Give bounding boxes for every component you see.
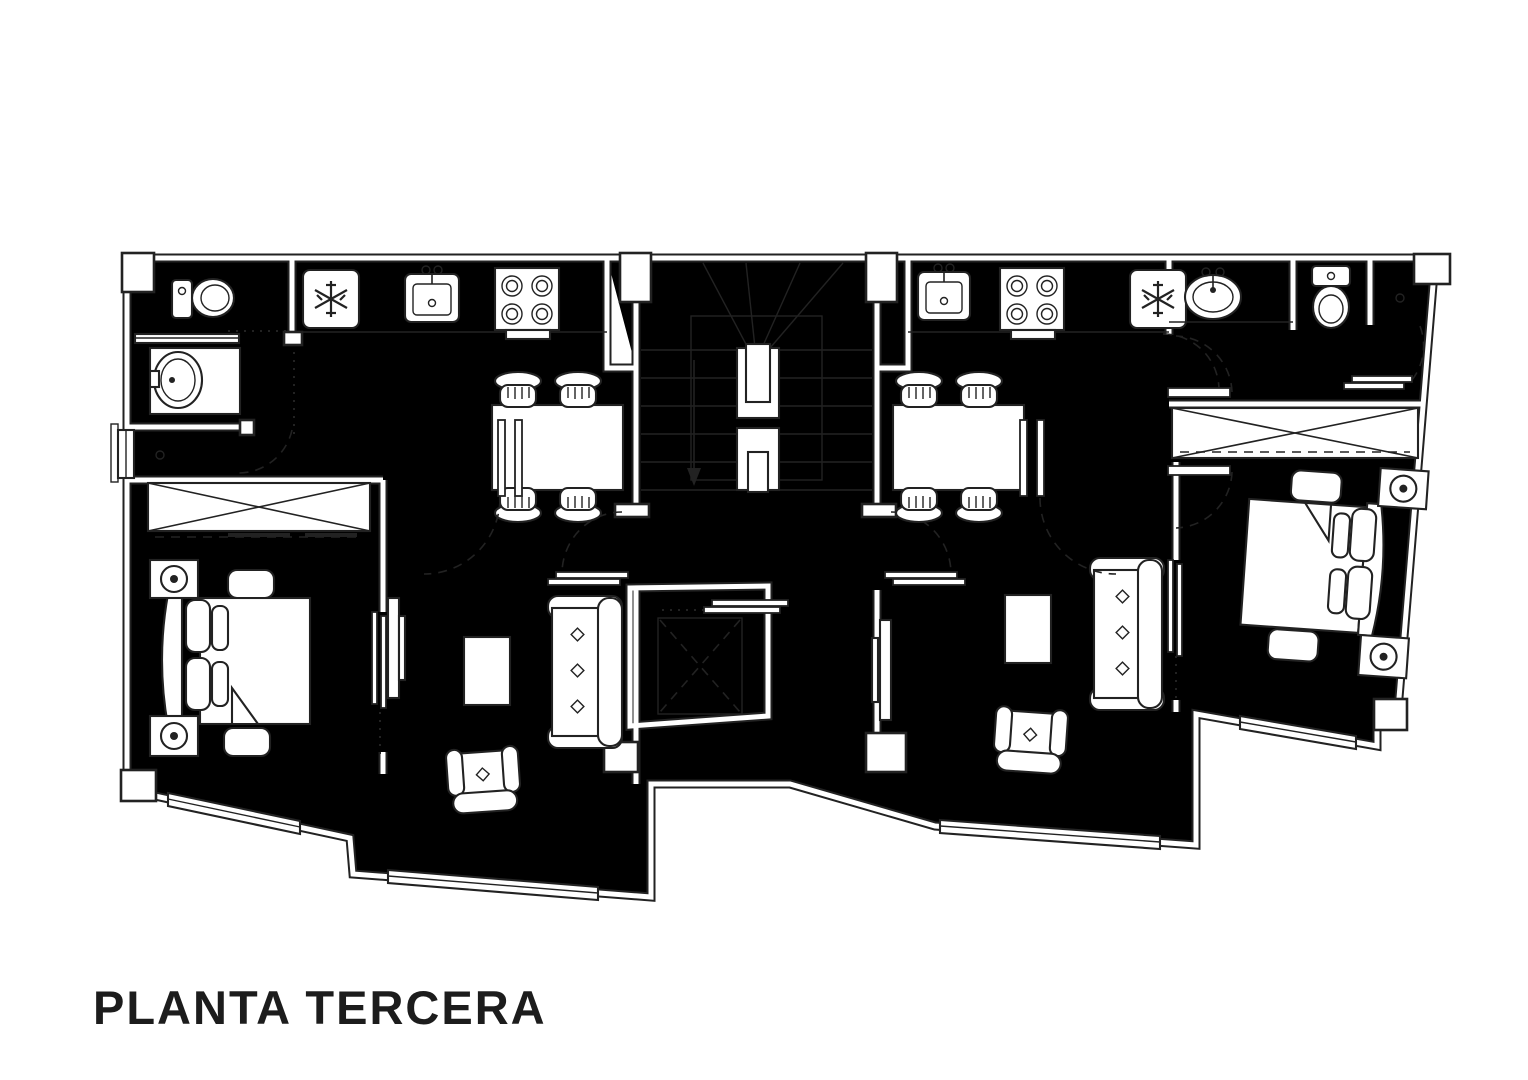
refrigerator-icon xyxy=(1130,270,1186,328)
chair xyxy=(956,372,1002,407)
nightstand-lamp xyxy=(1358,635,1409,678)
toilet-icon xyxy=(172,279,234,318)
armchair-icon xyxy=(446,745,522,814)
chair xyxy=(555,372,601,407)
nightstand-lamp xyxy=(150,560,198,598)
kitchen-sink-icon xyxy=(918,264,970,320)
nightstand-lamp xyxy=(150,716,198,756)
dining-table xyxy=(492,405,623,490)
refrigerator-icon xyxy=(303,270,359,328)
window-left-wall xyxy=(111,424,134,482)
plan-title: PLANTA TERCERA xyxy=(93,980,547,1035)
bench-cushion xyxy=(1267,629,1319,662)
dining-table xyxy=(893,405,1024,490)
nightstand-lamp xyxy=(1378,468,1429,509)
sofa-icon xyxy=(1090,558,1164,710)
chair xyxy=(896,488,942,522)
bench-cushion xyxy=(228,570,274,598)
stove-icon xyxy=(495,268,559,339)
headboard xyxy=(162,594,182,726)
sofa-icon xyxy=(548,596,622,748)
floor-plan-drawing xyxy=(0,0,1528,1080)
toilet-icon xyxy=(1312,266,1350,328)
bench-cushion xyxy=(224,728,270,756)
stair-newel xyxy=(737,344,779,492)
coffee-table xyxy=(464,637,510,705)
wardrobe-left xyxy=(148,483,370,537)
stove-icon xyxy=(1000,268,1064,339)
floor-plan-page: PLANTA TERCERA xyxy=(0,0,1528,1080)
washbasin-icon xyxy=(150,348,240,414)
coffee-table xyxy=(1005,595,1051,663)
chair xyxy=(896,372,942,407)
chair xyxy=(495,372,541,407)
double-bed-icon xyxy=(1240,495,1387,636)
vanity-shelf xyxy=(135,334,239,343)
chair xyxy=(956,488,1002,522)
bench-cushion xyxy=(1290,470,1342,503)
armchair-icon xyxy=(992,706,1068,775)
chair xyxy=(555,488,601,522)
kitchen-sink-icon xyxy=(405,266,459,322)
walls xyxy=(127,258,1438,897)
